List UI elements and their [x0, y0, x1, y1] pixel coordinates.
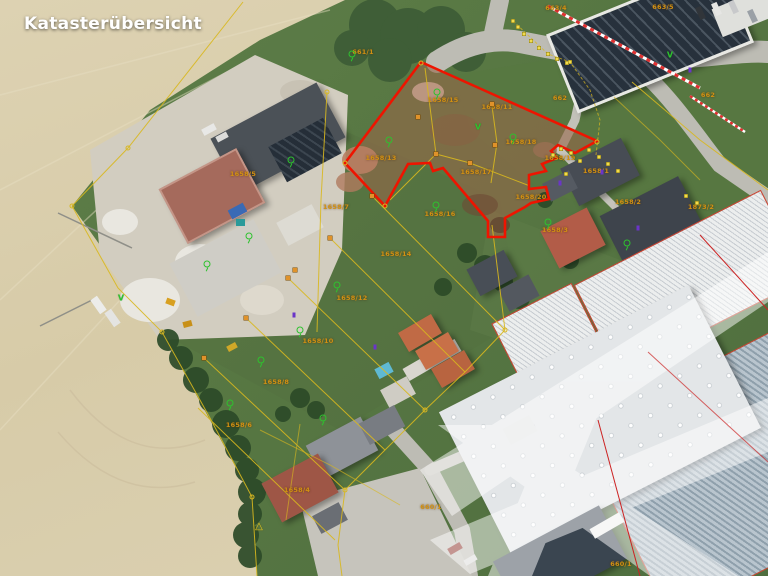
- house-roof-white: [380, 376, 416, 408]
- vehicle: [90, 296, 106, 315]
- construction-machine: [226, 342, 238, 352]
- construction-machine: [165, 298, 176, 307]
- construction-slab: [276, 204, 324, 246]
- vehicle: [447, 541, 463, 554]
- construction-tank: [236, 219, 245, 226]
- page-title: Katasterübersicht: [24, 14, 202, 34]
- cadastral-map-view: 661/1663/4663/56626621658/151658/111658/…: [0, 0, 768, 576]
- pool: [374, 361, 393, 378]
- vehicle: [201, 123, 217, 136]
- vehicle: [463, 554, 477, 566]
- vehicle: [104, 309, 120, 328]
- house-roof: [312, 502, 348, 534]
- house-roof-red: [540, 207, 605, 268]
- buildings-layer: [0, 0, 768, 576]
- house-roof: [560, 138, 640, 206]
- construction-machine: [182, 320, 192, 328]
